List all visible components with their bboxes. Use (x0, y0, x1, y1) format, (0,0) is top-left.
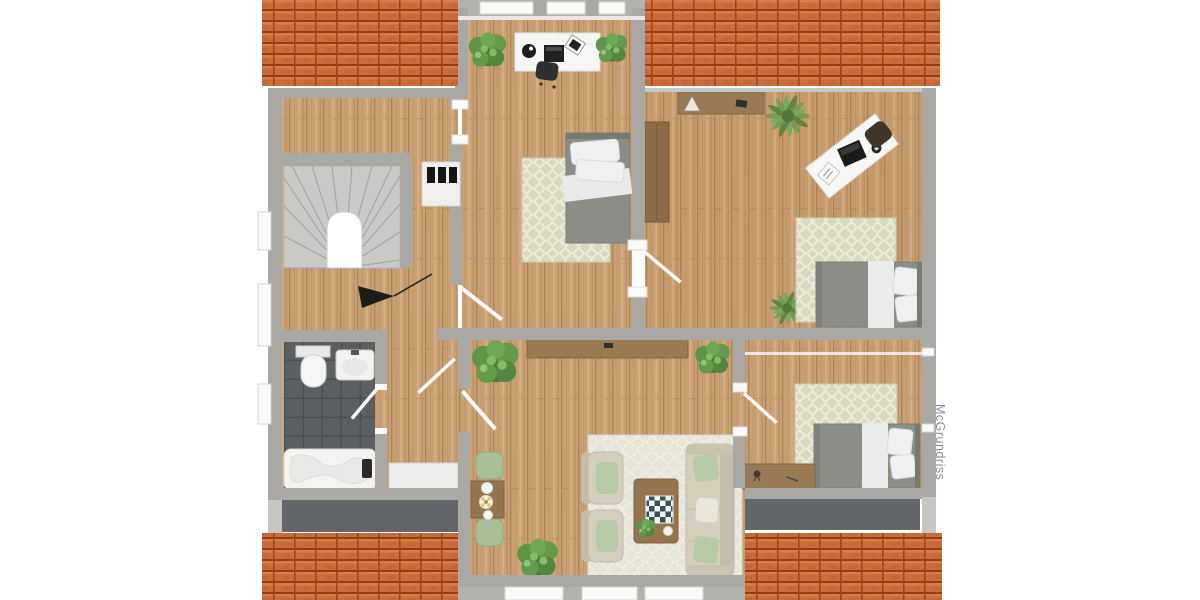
terrace-left (282, 500, 458, 532)
floor-plan-page: McGrundriss (0, 0, 1200, 600)
stool (476, 452, 503, 479)
terrace-edge-left (268, 500, 282, 533)
wall-living-bottom (458, 575, 745, 587)
single-bed (814, 423, 920, 489)
roof-top-left (262, 0, 458, 86)
checkerboard-icon (646, 496, 673, 523)
roof-top-right (645, 0, 940, 86)
door-post (733, 383, 747, 392)
bathtub-faucet-icon (362, 459, 372, 478)
window-left-wall (258, 284, 271, 346)
wall-living-left-b (458, 432, 470, 587)
window-dormer (599, 2, 625, 14)
pillow (887, 428, 914, 456)
knee-wall-line (745, 352, 922, 355)
cushion (692, 453, 720, 482)
window-pier (533, 0, 547, 16)
staircase (284, 166, 400, 268)
wall-bottom-right (745, 488, 936, 499)
door-post (628, 287, 647, 297)
wall-bathroom-top (268, 330, 387, 342)
pillow (575, 159, 624, 182)
wall-living-left-a (458, 335, 470, 388)
duvet (868, 261, 894, 328)
sofa-backrest (720, 444, 734, 576)
door-post (375, 428, 387, 434)
window-sill (455, 16, 645, 20)
window-dormer (480, 2, 533, 14)
armchair (581, 510, 623, 562)
washbasin-faucet-icon (351, 350, 359, 355)
window-pier (587, 0, 599, 16)
window-left-wall (258, 384, 271, 424)
toilet (301, 355, 326, 387)
window-left-wall (258, 212, 271, 250)
coffee-table (634, 479, 678, 543)
wall-bottom-left (268, 488, 462, 500)
single-bed (562, 133, 633, 243)
wall-dormer-right (632, 8, 645, 90)
terrace-right (745, 497, 920, 530)
roof-bottom-left (262, 533, 458, 600)
plate-icon (484, 511, 493, 520)
window-bottom (582, 587, 637, 600)
plate-icon (482, 483, 493, 494)
sofa (686, 444, 734, 576)
cushion (692, 535, 719, 564)
armchair (581, 452, 623, 504)
window-post-right (922, 348, 934, 356)
built-in-closet (389, 463, 458, 489)
cushion (695, 497, 719, 522)
washbasin-bowl (342, 358, 368, 376)
desk-chair (535, 61, 559, 82)
stairwell-arch-opening (327, 212, 362, 268)
door-post (452, 135, 468, 144)
side-table (471, 481, 504, 520)
roof-bottom-right (745, 533, 942, 600)
single-bed (816, 261, 922, 328)
desk (743, 464, 815, 489)
chimney (422, 162, 460, 206)
wall-roof-knee-edge (645, 88, 922, 92)
pillow (892, 267, 919, 297)
duvet (862, 423, 888, 489)
window-dormer (547, 2, 585, 14)
wall-stairs-right (400, 166, 412, 268)
door-post (628, 240, 647, 250)
door-post (733, 427, 747, 436)
desk-lamp-icon (522, 44, 536, 58)
window-bottom (645, 587, 703, 600)
wall-bathroom-right-b (375, 430, 387, 490)
cup-icon (664, 527, 673, 536)
wall-bathroom-right-a (375, 330, 387, 388)
wall-bedroom-right-a (632, 90, 645, 250)
wall-mid-horizontal (437, 328, 922, 340)
wall-stairs-top (282, 153, 410, 166)
window-bottom (505, 587, 563, 600)
window-post-right (922, 424, 934, 432)
tripod-lamp-icon (754, 471, 761, 478)
stool (476, 519, 503, 546)
watermark-text: McGrundriss (933, 404, 947, 480)
terrace-edge-right (922, 497, 936, 533)
wall-top-left (268, 88, 462, 98)
door-post (452, 100, 468, 109)
decor-item-icon (604, 343, 613, 348)
pillow (890, 454, 917, 480)
floor-plan: McGrundriss (0, 0, 1200, 600)
